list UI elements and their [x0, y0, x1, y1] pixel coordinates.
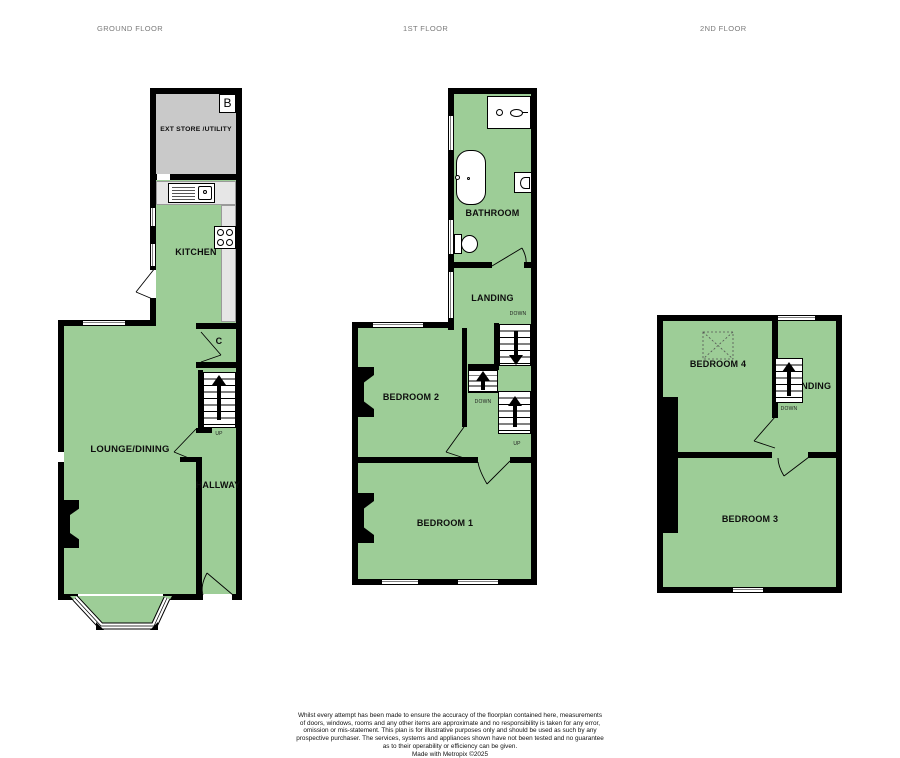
disclaimer-line: as to their operability or efficiency ca…: [0, 743, 900, 751]
disclaimer-line: prospective purchaser. The services, sys…: [0, 735, 900, 743]
cupboard-label: C: [207, 336, 231, 346]
floorplan-canvas: GROUND FLOOR 1ST FLOOR 2ND FLOOR B EXT S…: [0, 0, 900, 758]
ground-floor-title: GROUND FLOOR: [97, 24, 163, 33]
first-landing-label: LANDING: [454, 293, 531, 303]
bathroom-label: BATHROOM: [454, 208, 531, 218]
down-label: DOWN: [775, 406, 803, 412]
wall: [196, 323, 236, 329]
window: [382, 579, 418, 585]
wall: [236, 88, 242, 600]
up-label: UP: [503, 441, 531, 447]
stair-arrow-head: [508, 396, 522, 406]
hob: [214, 226, 236, 249]
boiler-symbol: B: [219, 94, 236, 113]
wall: [352, 322, 358, 585]
stair-arrow: [787, 369, 791, 396]
lounge-label: LOUNGE/DINING: [64, 444, 196, 455]
hallway-label: HALLWAY: [188, 480, 248, 490]
toilet-bowl: [461, 235, 478, 253]
window: [448, 116, 454, 150]
bedroom3-label: BEDROOM 3: [663, 514, 837, 524]
ext-store-label: EXT STORE /UTILITY: [152, 126, 240, 133]
shower: [487, 96, 531, 129]
bay-window-floor: [70, 596, 172, 627]
door-opening: [157, 174, 170, 180]
door-opening: [150, 270, 156, 298]
disclaimer-line: Whilst every attempt has been made to en…: [0, 712, 900, 720]
stair-arrow: [513, 403, 517, 427]
wall: [163, 594, 203, 600]
down-label: DOWN: [469, 399, 497, 405]
wall: [448, 262, 492, 268]
wall: [150, 88, 156, 180]
disclaimer-line: omission or mis-statement. This plan is …: [0, 727, 900, 735]
sink-tap: [203, 190, 207, 194]
disclaimer-line: of doors, windows, rooms and any other i…: [0, 720, 900, 728]
window: [458, 579, 498, 585]
wall: [448, 88, 537, 94]
kitchen-label: KITCHEN: [156, 247, 236, 257]
wall: [808, 452, 842, 458]
stair-arrow: [514, 331, 518, 357]
wall: [196, 362, 236, 368]
wall: [180, 457, 196, 462]
wall: [531, 88, 537, 585]
basin: [514, 172, 532, 193]
chimney-breast: [663, 397, 678, 533]
stair-arrow-head: [782, 362, 796, 372]
stair-arrow-head: [509, 355, 523, 365]
wall: [58, 594, 78, 600]
sink-drainer: [172, 187, 195, 200]
disclaimer: Whilst every attempt has been made to en…: [0, 712, 900, 758]
wall: [663, 452, 772, 458]
stair-arrow: [217, 384, 221, 420]
first-floor-title: 1ST FLOOR: [403, 24, 448, 33]
wall: [524, 262, 537, 268]
window: [83, 320, 125, 326]
window: [733, 587, 763, 593]
window: [778, 315, 815, 321]
bedroom4-label: BEDROOM 4: [663, 359, 773, 369]
second-floor-title: 2ND FLOOR: [700, 24, 747, 33]
stair-arrow-head: [476, 371, 490, 381]
wall: [462, 328, 467, 427]
up-label: UP: [205, 431, 233, 437]
wall: [352, 457, 478, 463]
kitchen-sink: [168, 183, 215, 203]
bathtub: [456, 150, 486, 205]
bedroom1-label: BEDROOM 1: [358, 518, 532, 528]
stair-arrow-head: [212, 375, 226, 385]
boiler-letter: B: [220, 96, 235, 110]
wall: [232, 594, 242, 600]
window: [150, 208, 156, 226]
wall: [352, 579, 537, 585]
window: [373, 322, 423, 328]
credit-line: Made with Metropix ©2025: [0, 751, 900, 758]
wall: [196, 457, 202, 594]
kitchen-counter: [221, 205, 236, 322]
bedroom2-label: BEDROOM 2: [358, 392, 464, 402]
wall: [510, 457, 537, 463]
down-label: DOWN: [504, 311, 532, 317]
